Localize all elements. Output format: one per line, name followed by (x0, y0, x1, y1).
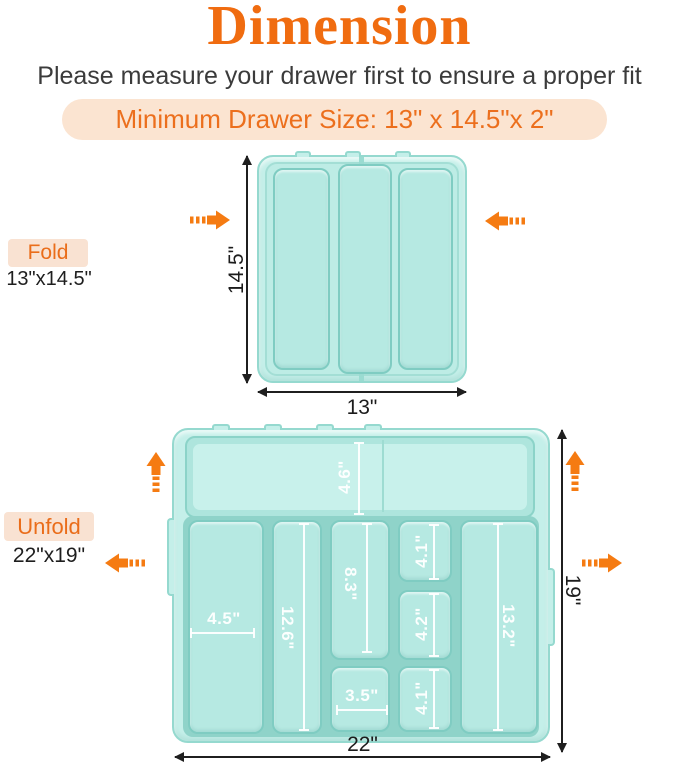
unfold-top-compartment (185, 436, 535, 518)
lid-panel (193, 444, 527, 510)
tray-shell-step-left (167, 518, 174, 596)
dim-line-4-1-top (433, 525, 435, 579)
fold-badge-label: Fold (28, 241, 69, 265)
unfold-compartment-col3-top (330, 520, 390, 660)
compress-arrow-right-icon (190, 210, 230, 230)
tray-tab (212, 424, 230, 430)
page-title: Dimension (0, 0, 679, 58)
unfold-badge-label: Unfold (17, 514, 81, 540)
fold-size-label: 13"x14.5" (0, 268, 101, 291)
fold-height-label: 14.5" (225, 237, 249, 303)
unfold-size-label: 22"x19" (0, 544, 101, 568)
min-drawer-size-text: Minimum Drawer Size: 13" x 14.5"x 2" (115, 104, 553, 135)
dim-label-4-1-top: 4.1" (412, 523, 432, 579)
dim-line-4-6 (358, 443, 360, 514)
min-drawer-size-pill: Minimum Drawer Size: 13" x 14.5"x 2" (62, 99, 607, 140)
fold-width-dimension-line (258, 391, 466, 393)
unfold-width-label: 22" (175, 733, 550, 757)
expand-arrow-up-right-icon (565, 451, 585, 491)
tray-shell-step-right (548, 568, 555, 646)
fold-compartment-right (398, 168, 453, 370)
dim-label-4-2: 4.2" (412, 596, 432, 652)
dim-line-4-1-bottom (433, 670, 435, 728)
fold-compartment-middle (338, 164, 392, 374)
dim-label-8-3: 8.3" (340, 556, 360, 612)
dim-label-13-2: 13.2" (498, 598, 518, 654)
expand-arrow-up-left-icon (146, 452, 166, 492)
dim-line-3-5 (337, 709, 387, 711)
tray-tab (316, 424, 334, 430)
dim-label-4-1-bottom: 4.1" (412, 670, 432, 726)
dim-label-4-6: 4.6" (335, 449, 355, 505)
dimension-infographic: Dimension Please measure your drawer fir… (0, 0, 679, 764)
fold-compartment-left (273, 168, 330, 370)
dim-label-4-5: 4.5" (194, 609, 254, 629)
dim-line-8-3 (366, 524, 368, 652)
dim-line-4-2 (433, 594, 435, 656)
tray-tab (264, 424, 282, 430)
unfold-height-label: 19" (560, 557, 584, 623)
tray-tab (295, 151, 311, 157)
unfold-badge: Unfold (4, 512, 94, 541)
fold-badge: Fold (8, 239, 88, 267)
expand-arrow-left-icon (105, 553, 145, 573)
expand-arrow-right-icon (582, 553, 622, 573)
tray-tab (364, 424, 382, 430)
subtitle: Please measure your drawer first to ensu… (0, 62, 679, 91)
dim-line-12-6 (303, 524, 305, 730)
compress-arrow-left-icon (485, 211, 525, 231)
lid-seam (382, 440, 384, 512)
folded-tray (257, 155, 467, 383)
fold-width-label: 13" (258, 396, 466, 420)
unfolded-tray: 4.6" 4.5" 12.6" 8.3" 3.5" 4.1" 4.2" 4.1"… (172, 428, 550, 743)
tray-tab (395, 151, 411, 157)
dim-label-3-5: 3.5" (334, 686, 390, 706)
dim-line-4-5 (191, 632, 254, 634)
dim-label-12-6: 12.6" (277, 600, 297, 656)
